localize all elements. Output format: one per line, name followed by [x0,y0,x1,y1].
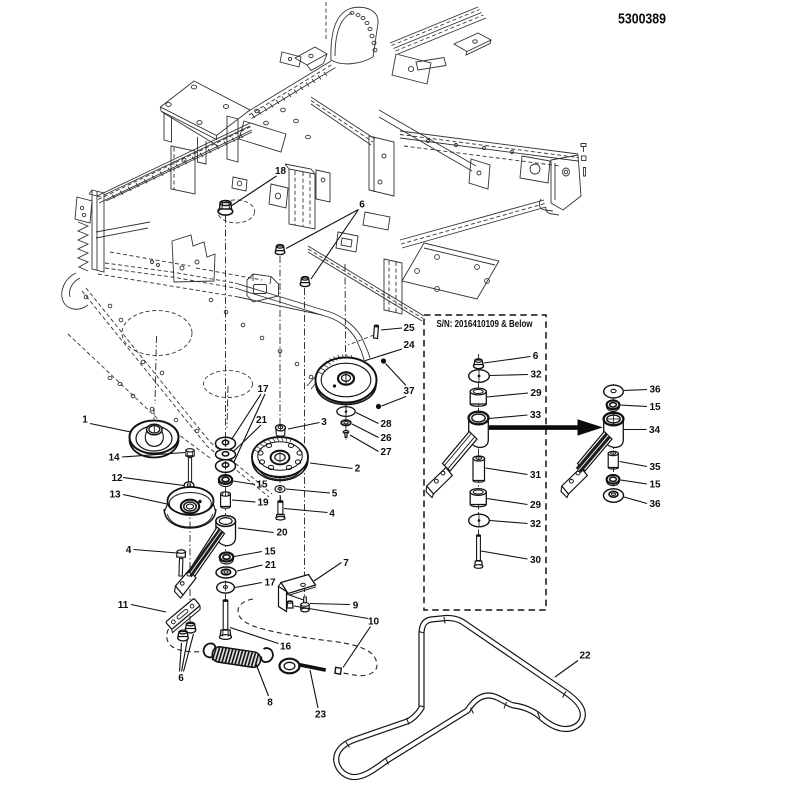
svg-text:29: 29 [530,500,542,511]
svg-text:1: 1 [82,415,88,426]
svg-text:35: 35 [649,462,661,473]
svg-text:6: 6 [359,200,365,211]
svg-text:37: 37 [403,386,415,397]
svg-text:29: 29 [530,388,542,399]
svg-text:11: 11 [118,600,129,611]
svg-text:15: 15 [264,547,276,558]
svg-text:26: 26 [380,433,392,444]
svg-text:6: 6 [178,673,184,684]
svg-text:9: 9 [353,601,359,612]
svg-text:8: 8 [267,698,273,709]
svg-text:24: 24 [403,340,415,351]
svg-text:19: 19 [257,498,269,509]
svg-text:31: 31 [530,470,542,481]
svg-text:4: 4 [126,545,132,556]
svg-text:34: 34 [649,425,661,436]
svg-text:36: 36 [649,499,661,510]
svg-text:28: 28 [380,419,392,430]
svg-text:32: 32 [530,519,542,530]
svg-text:16: 16 [280,642,292,653]
svg-text:23: 23 [315,710,327,721]
svg-text:3: 3 [321,417,327,428]
svg-text:10: 10 [368,617,380,628]
svg-text:15: 15 [649,402,661,413]
svg-text:14: 14 [108,453,120,464]
svg-text:33: 33 [530,410,542,421]
svg-text:21: 21 [265,560,277,571]
svg-text:12: 12 [111,473,123,484]
svg-text:25: 25 [403,323,415,334]
svg-text:7: 7 [343,558,349,569]
svg-text:20: 20 [276,528,288,539]
svg-text:36: 36 [649,385,661,396]
svg-text:27: 27 [380,447,392,458]
svg-text:13: 13 [109,490,121,501]
svg-text:5300389: 5300389 [618,11,666,28]
svg-text:2: 2 [355,464,361,475]
svg-text:18: 18 [275,166,287,177]
svg-text:6: 6 [533,351,539,362]
svg-text:17: 17 [257,384,269,395]
svg-text:5: 5 [332,489,338,500]
svg-text:17: 17 [264,578,276,589]
svg-text:S/N: 2016410109 & Below: S/N: 2016410109 & Below [437,318,534,330]
svg-text:22: 22 [579,651,591,662]
svg-text:15: 15 [256,480,268,491]
svg-text:21: 21 [256,415,268,426]
svg-text:30: 30 [530,555,542,566]
svg-text:4: 4 [329,509,335,520]
svg-text:15: 15 [649,480,661,491]
svg-text:32: 32 [530,370,542,381]
